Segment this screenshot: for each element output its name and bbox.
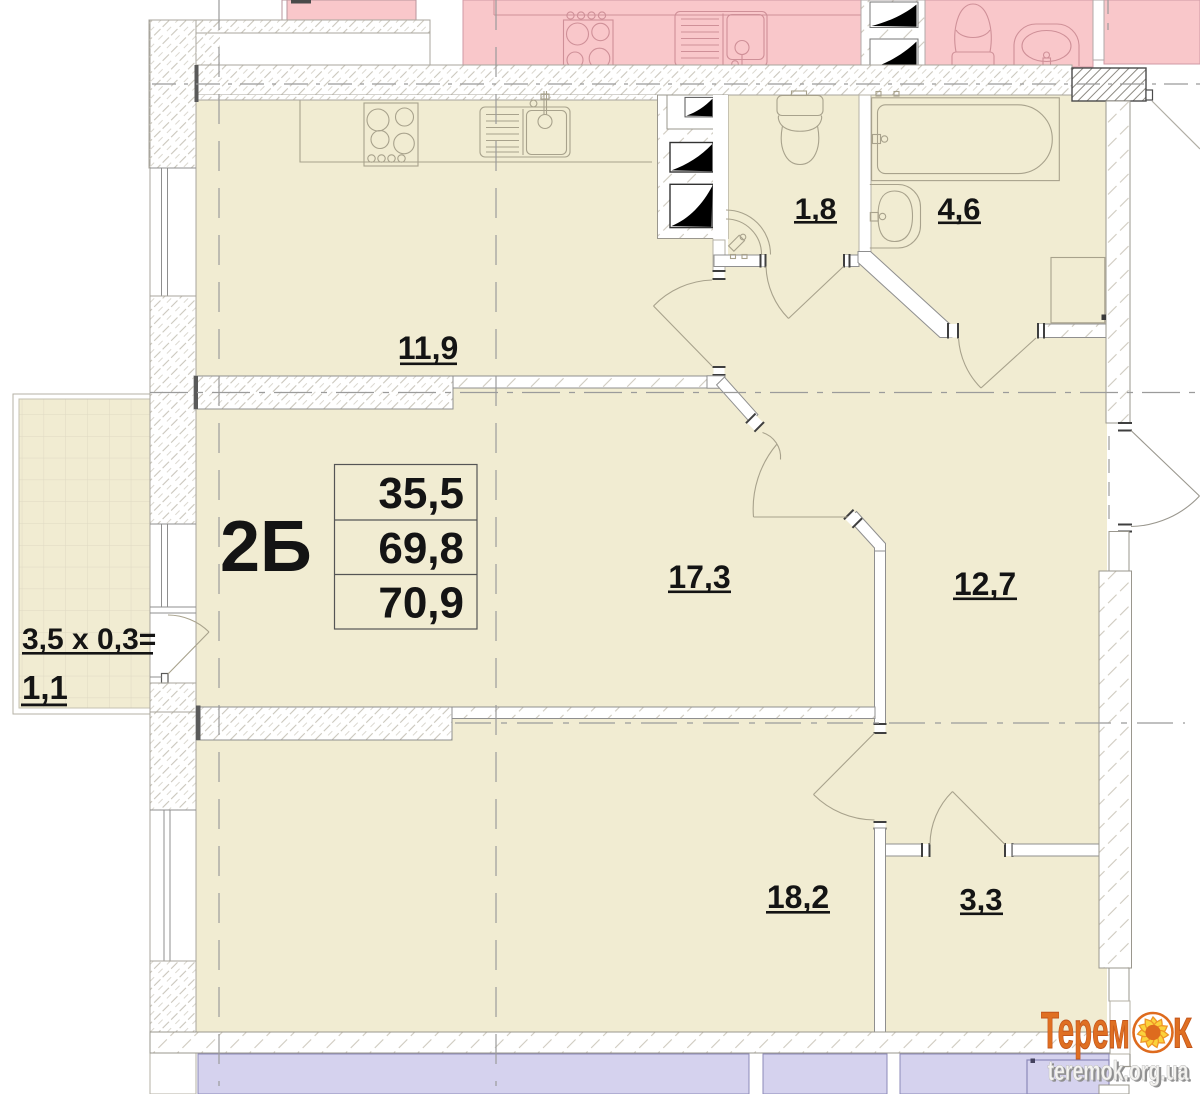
svg-text:3,3: 3,3 xyxy=(959,882,1002,917)
svg-text:К: К xyxy=(1173,1010,1193,1058)
svg-text:2Б: 2Б xyxy=(220,507,312,587)
svg-text:70,9: 70,9 xyxy=(378,579,464,628)
svg-text:4,6: 4,6 xyxy=(937,192,980,227)
svg-text:Терем: Терем xyxy=(1041,1002,1130,1060)
svg-text:35,5: 35,5 xyxy=(378,469,464,518)
svg-text:17,3: 17,3 xyxy=(668,559,730,595)
svg-text:teremok.org.ua: teremok.org.ua xyxy=(1048,1055,1189,1086)
svg-text:69,8: 69,8 xyxy=(378,524,464,573)
svg-text:12,7: 12,7 xyxy=(954,566,1016,602)
svg-text:18,2: 18,2 xyxy=(767,879,829,915)
svg-text:1,1: 1,1 xyxy=(22,669,68,706)
svg-text:3,5 x 0,3=: 3,5 x 0,3= xyxy=(22,623,156,656)
svg-text:11,9: 11,9 xyxy=(398,330,459,366)
